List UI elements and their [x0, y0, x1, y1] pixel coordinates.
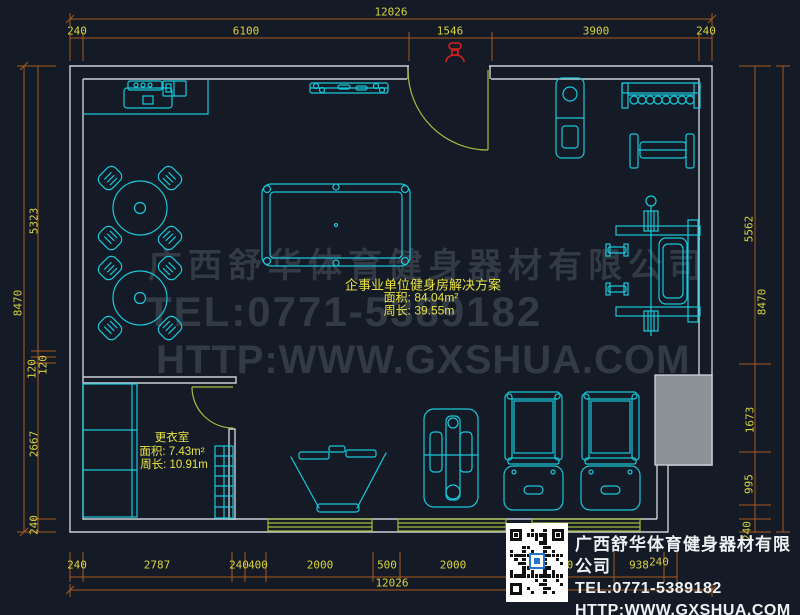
situp-bench — [291, 446, 386, 512]
billiard-table — [262, 184, 410, 266]
flat-bench — [630, 134, 694, 168]
qr-center-logo — [529, 553, 545, 569]
dim-left-4: 240 — [28, 515, 41, 535]
plan-perimeter: 周长: 39.55m — [384, 302, 455, 319]
reception-area — [83, 80, 208, 114]
dim-left-0: 5323 — [28, 208, 41, 235]
title-block: 广西舒华体育健身器材有限公司 TEL:0771-5389182 HTTP:WWW… — [575, 534, 800, 615]
dim-right-0: 5562 — [743, 216, 756, 243]
vertical-machine — [556, 78, 584, 158]
dim-top-1: 6100 — [233, 25, 260, 38]
dim-top-total: 12026 — [374, 6, 407, 19]
shelf-rack — [215, 446, 233, 518]
dim-left-2: 120 — [37, 355, 50, 375]
dim-top-0: 240 — [67, 25, 87, 38]
window-strips — [268, 519, 640, 531]
qr-code — [506, 523, 568, 602]
column-pillar — [655, 375, 712, 465]
dim-bottom-6: 2000 — [440, 559, 467, 572]
dim-bottom-total: 12026 — [375, 577, 408, 590]
hydrant-icon — [446, 43, 464, 62]
treadmill-2 — [581, 392, 640, 510]
dim-left-outer: 8470 — [12, 290, 25, 317]
dim-right-2: 995 — [743, 474, 756, 494]
dining-table-2 — [96, 254, 184, 342]
dim-bottom-0: 240 — [67, 559, 87, 572]
dumbbell-rack-top — [310, 83, 388, 93]
dim-bottom-4: 2000 — [307, 559, 334, 572]
multi-station-machine — [424, 409, 478, 507]
dim-right-1: 1673 — [744, 407, 757, 434]
company-phone: TEL:0771-5389182 — [575, 578, 800, 600]
dim-top-2: 1546 — [437, 25, 464, 38]
barbell-plate-rack — [622, 83, 700, 108]
dim-bottom-5: 500 — [377, 559, 397, 572]
cad-floor-plan: 广西舒华体育健身器材有限公司 TEL:0771-5389182 HTTP:WWW… — [0, 0, 800, 615]
dim-bottom-3: 400 — [248, 559, 268, 572]
changing-room-door — [192, 387, 233, 428]
changing-room-perimeter: 周长: 10.91m — [140, 456, 208, 472]
dining-table-1 — [96, 164, 184, 252]
dim-top-4: 240 — [696, 25, 716, 38]
dim-top-3: 3900 — [583, 25, 610, 38]
bench-press-station — [606, 196, 700, 336]
locker-cabinet — [83, 384, 137, 517]
dim-bottom-2: 240 — [229, 559, 249, 572]
dim-bottom-1: 2787 — [144, 559, 171, 572]
dim-left-3: 2667 — [28, 431, 41, 458]
company-name: 广西舒华体育健身器材有限公司 — [575, 534, 800, 578]
dim-right-outer: 8470 — [756, 289, 769, 316]
treadmill-1 — [504, 392, 563, 510]
company-url: HTTP:WWW.GXSHUA.COM — [575, 600, 800, 615]
